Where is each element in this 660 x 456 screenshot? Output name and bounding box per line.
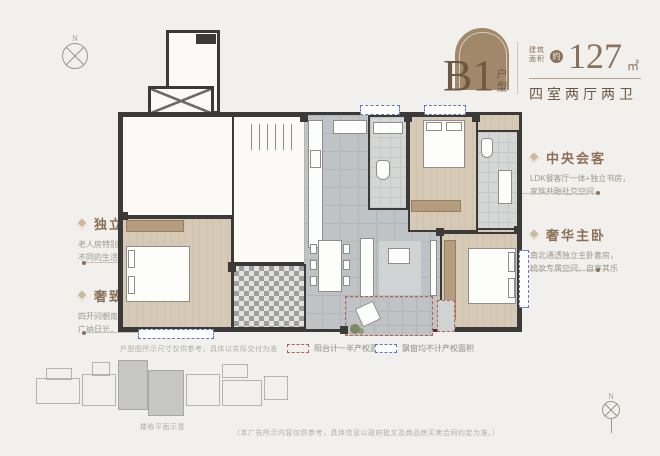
chair-icon xyxy=(343,276,350,286)
tv-cabinet-icon xyxy=(430,240,437,296)
annotation-central-living: 中央会客 LDK餐客厅一体+独立书房， 家族共融社交空间 xyxy=(530,148,648,199)
annotation-title: 奢华主卧 xyxy=(546,225,606,244)
kitchen-island xyxy=(333,120,367,134)
pillow-icon xyxy=(446,122,462,131)
wall-segment xyxy=(472,112,480,122)
plant-icon xyxy=(350,324,360,334)
compass-north-west: N xyxy=(62,34,88,69)
plan-note: 户型图所示尺寸仅供参考，具体以实际交付为准 xyxy=(120,344,278,354)
pillow-icon xyxy=(508,278,515,298)
kitchen-counter xyxy=(308,120,323,248)
disclaimer: （本广告所示内容仅供参考，具体信息以政府批文及商品房买卖合同约定为准。） xyxy=(233,428,533,438)
plan-code-suffix: 户型 xyxy=(493,68,509,94)
chair-icon xyxy=(310,276,317,286)
diamond-icon xyxy=(76,290,87,301)
layout-desc: 四室两厅两卫 xyxy=(529,84,637,104)
pillow-icon xyxy=(426,122,442,131)
plan-header: B1 户型 建筑 面积 约 127 ㎡ 四室两厅两卫 xyxy=(441,28,646,98)
legend-balcony: 阳台计一半产权面积 xyxy=(287,343,386,354)
room-entry-foyer xyxy=(232,264,306,329)
wall-segment xyxy=(300,112,308,122)
wall-segment xyxy=(228,262,236,272)
diamond-icon xyxy=(528,229,539,240)
toilet-icon xyxy=(481,138,493,158)
wall-segment xyxy=(404,112,412,122)
chair-icon xyxy=(310,244,317,254)
chair-icon xyxy=(343,260,350,270)
bay-window xyxy=(360,105,400,115)
pillow-icon xyxy=(128,250,135,268)
plan-code: B1 xyxy=(443,54,494,98)
sofa-icon xyxy=(360,238,374,298)
toilet-icon xyxy=(376,160,390,180)
bed-icon xyxy=(126,246,190,302)
area-label-line1: 建筑 xyxy=(529,47,545,56)
annotation-desc-line1: 南北通透独立主卧套房， xyxy=(530,250,648,263)
compass-needle xyxy=(611,419,612,433)
area-label: 建筑 面积 xyxy=(529,47,545,65)
wardrobe-icon xyxy=(411,200,461,212)
compass-n-label: N xyxy=(602,392,620,401)
legend-baywindow: 飘窗均不计产权面积 xyxy=(375,343,474,354)
vanity-icon xyxy=(373,122,403,134)
dining-table-icon xyxy=(318,240,342,292)
wall-segment xyxy=(340,326,348,334)
compass-icon xyxy=(62,43,88,69)
area-row: 建筑 面积 约 127 ㎡ xyxy=(529,38,639,74)
stairs-icon xyxy=(244,124,296,150)
wall-segment xyxy=(436,228,444,236)
site-key-plan xyxy=(36,360,288,416)
connector-dot xyxy=(596,268,600,272)
compass-icon xyxy=(602,401,620,419)
compass-n-label: N xyxy=(62,34,88,43)
area-value: 127 xyxy=(568,38,622,74)
baywindow-legend-swatch xyxy=(375,344,397,353)
wardrobe-icon xyxy=(126,220,184,232)
baywindow-legend-label: 飘窗均不计产权面积 xyxy=(402,343,474,354)
siteplan-caption: 楼栋平面示意 xyxy=(140,422,185,432)
wall-segment xyxy=(196,34,216,44)
approx-badge: 约 xyxy=(550,50,563,63)
chair-icon xyxy=(310,260,317,270)
area-unit: ㎡ xyxy=(627,57,639,74)
stove-icon xyxy=(310,150,321,168)
compass-south-east: N xyxy=(602,392,620,433)
bay-window xyxy=(424,105,466,115)
equipment-platform xyxy=(437,300,455,332)
annotation-desc-line1: LDK餐客厅一体+独立书房， xyxy=(530,173,648,186)
annotation-title: 中央会客 xyxy=(546,148,606,167)
wall-segment xyxy=(118,212,128,220)
diamond-icon xyxy=(76,218,87,229)
highlighted-unit xyxy=(118,360,148,410)
coffee-table-icon xyxy=(388,248,410,264)
area-label-line2: 面积 xyxy=(529,56,545,65)
pillow-icon xyxy=(508,252,515,272)
chair-icon xyxy=(343,244,350,254)
room-lobby xyxy=(121,115,234,217)
header-divider xyxy=(517,42,518,94)
bay-window xyxy=(519,250,529,308)
balcony-legend-swatch xyxy=(287,344,309,353)
header-rule xyxy=(529,78,641,79)
shower-icon xyxy=(498,170,512,204)
floorplan-page: N B1 户型 建筑 面积 约 127 ㎡ 四室两厅两卫 独立卧房 老人房特别设… xyxy=(0,0,660,456)
highlighted-unit xyxy=(148,370,184,416)
annotation-master-bedroom: 奢华主卧 南北通透独立主卧套房， 梳妆专属空间，自享其乐 xyxy=(530,225,648,276)
bay-window xyxy=(138,329,214,339)
connector-dot xyxy=(596,191,600,195)
wall-segment xyxy=(514,226,522,234)
pillow-icon xyxy=(128,276,135,294)
diamond-icon xyxy=(528,152,539,163)
